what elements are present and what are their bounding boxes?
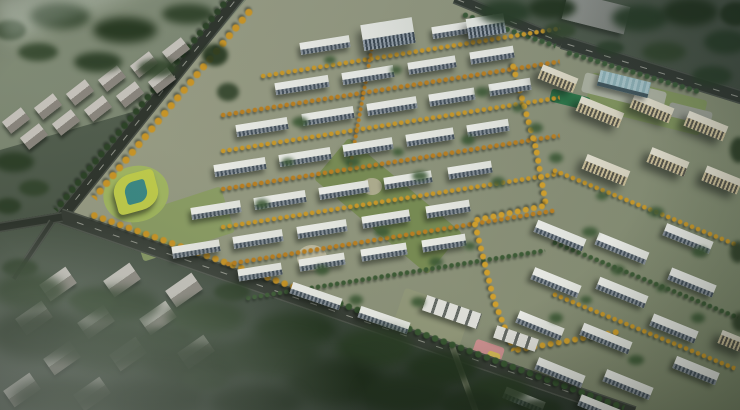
tree-canopy: [429, 257, 443, 267]
tree-canopy: [315, 265, 329, 275]
tree-canopy: [549, 153, 563, 163]
tree-canopy: [344, 157, 360, 167]
tree-canopy: [68, 289, 116, 311]
tree-canopy: [74, 52, 122, 72]
tree-canopy: [529, 123, 543, 133]
tree-canopy: [2, 259, 38, 277]
tree-canopy: [464, 242, 476, 250]
tree-canopy: [518, 398, 562, 410]
aerial-masterplan-rendering: [0, 0, 740, 410]
tree-canopy: [544, 22, 576, 38]
tree-canopy: [692, 66, 732, 86]
tree-canopy: [512, 104, 524, 112]
tree-canopy: [214, 283, 250, 301]
tree-canopy: [19, 180, 49, 196]
tree-canopy: [255, 199, 269, 209]
tree-canopy: [642, 42, 686, 62]
tree-canopy: [324, 56, 336, 64]
tree-canopy: [720, 2, 740, 26]
tree-canopy: [30, 3, 90, 29]
tree-canopy: [461, 135, 475, 145]
tree-canopy: [612, 5, 668, 31]
tree-canopy: [292, 117, 308, 127]
tree-canopy: [691, 313, 705, 323]
tree-canopy: [549, 313, 563, 323]
tree-canopy: [361, 374, 449, 410]
tree-canopy: [704, 30, 740, 54]
tree-canopy: [528, 0, 576, 19]
tree-canopy: [202, 44, 228, 66]
tree-canopy: [0, 20, 26, 40]
tree-canopy: [656, 284, 668, 292]
tree-canopy: [730, 137, 740, 163]
tree-canopy: [582, 227, 598, 237]
tree-canopy: [162, 4, 214, 24]
tree-canopy: [138, 59, 178, 77]
tree-canopy: [662, 0, 718, 26]
tree-canopy: [580, 296, 592, 304]
tree-canopy: [217, 83, 239, 101]
tree-canopy: [18, 43, 58, 61]
tree-canopy: [390, 66, 402, 74]
tree-canopy: [692, 247, 708, 257]
tree-canopy: [183, 370, 227, 390]
tree-canopy: [648, 207, 664, 217]
tree-canopy: [611, 265, 625, 275]
tree-canopy: [596, 41, 624, 55]
tree-canopy: [596, 192, 608, 200]
tree-canopy: [732, 312, 740, 332]
tree-canopy: [349, 295, 363, 305]
tree-canopy: [411, 297, 425, 307]
forest-layer: [0, 0, 740, 410]
tree-canopy: [12, 378, 112, 410]
tree-canopy: [93, 17, 157, 43]
tree-canopy: [282, 158, 294, 166]
tree-canopy: [475, 87, 489, 97]
tree-canopy: [0, 198, 21, 214]
tree-canopy: [628, 355, 644, 365]
tree-canopy: [392, 148, 404, 156]
tree-canopy: [730, 241, 740, 263]
tree-canopy: [0, 274, 66, 310]
tree-canopy: [491, 177, 505, 187]
tree-canopy: [479, 0, 531, 24]
tree-canopy: [144, 327, 192, 349]
tree-canopy: [0, 152, 34, 172]
tree-canopy: [374, 227, 390, 237]
tree-canopy: [412, 171, 428, 181]
